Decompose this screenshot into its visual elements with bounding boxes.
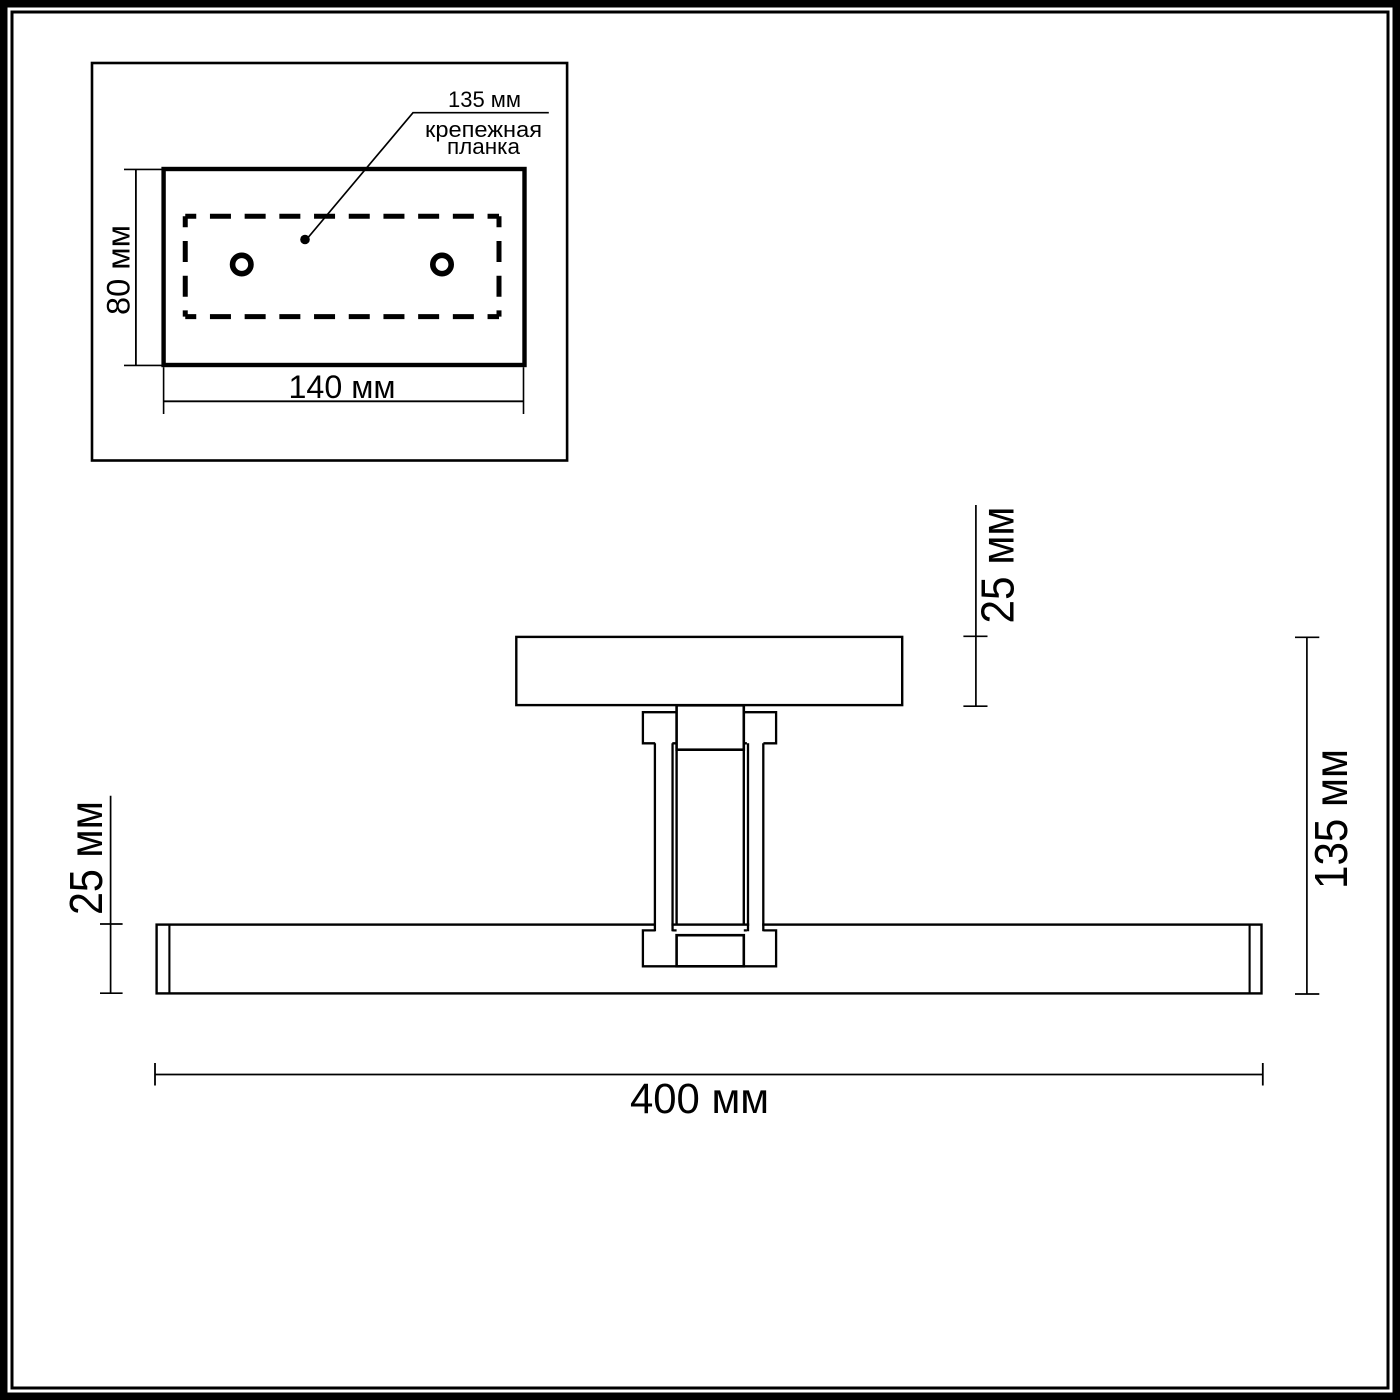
svg-text:135 мм: 135 мм (448, 87, 521, 112)
svg-text:80 мм: 80 мм (100, 225, 136, 315)
svg-text:135 мм: 135 мм (1305, 749, 1357, 889)
svg-text:планка: планка (447, 134, 520, 159)
svg-text:25 мм: 25 мм (972, 507, 1024, 624)
svg-text:140 мм: 140 мм (289, 369, 396, 405)
svg-text:400 мм: 400 мм (630, 1076, 769, 1123)
svg-text:25 мм: 25 мм (60, 801, 112, 915)
